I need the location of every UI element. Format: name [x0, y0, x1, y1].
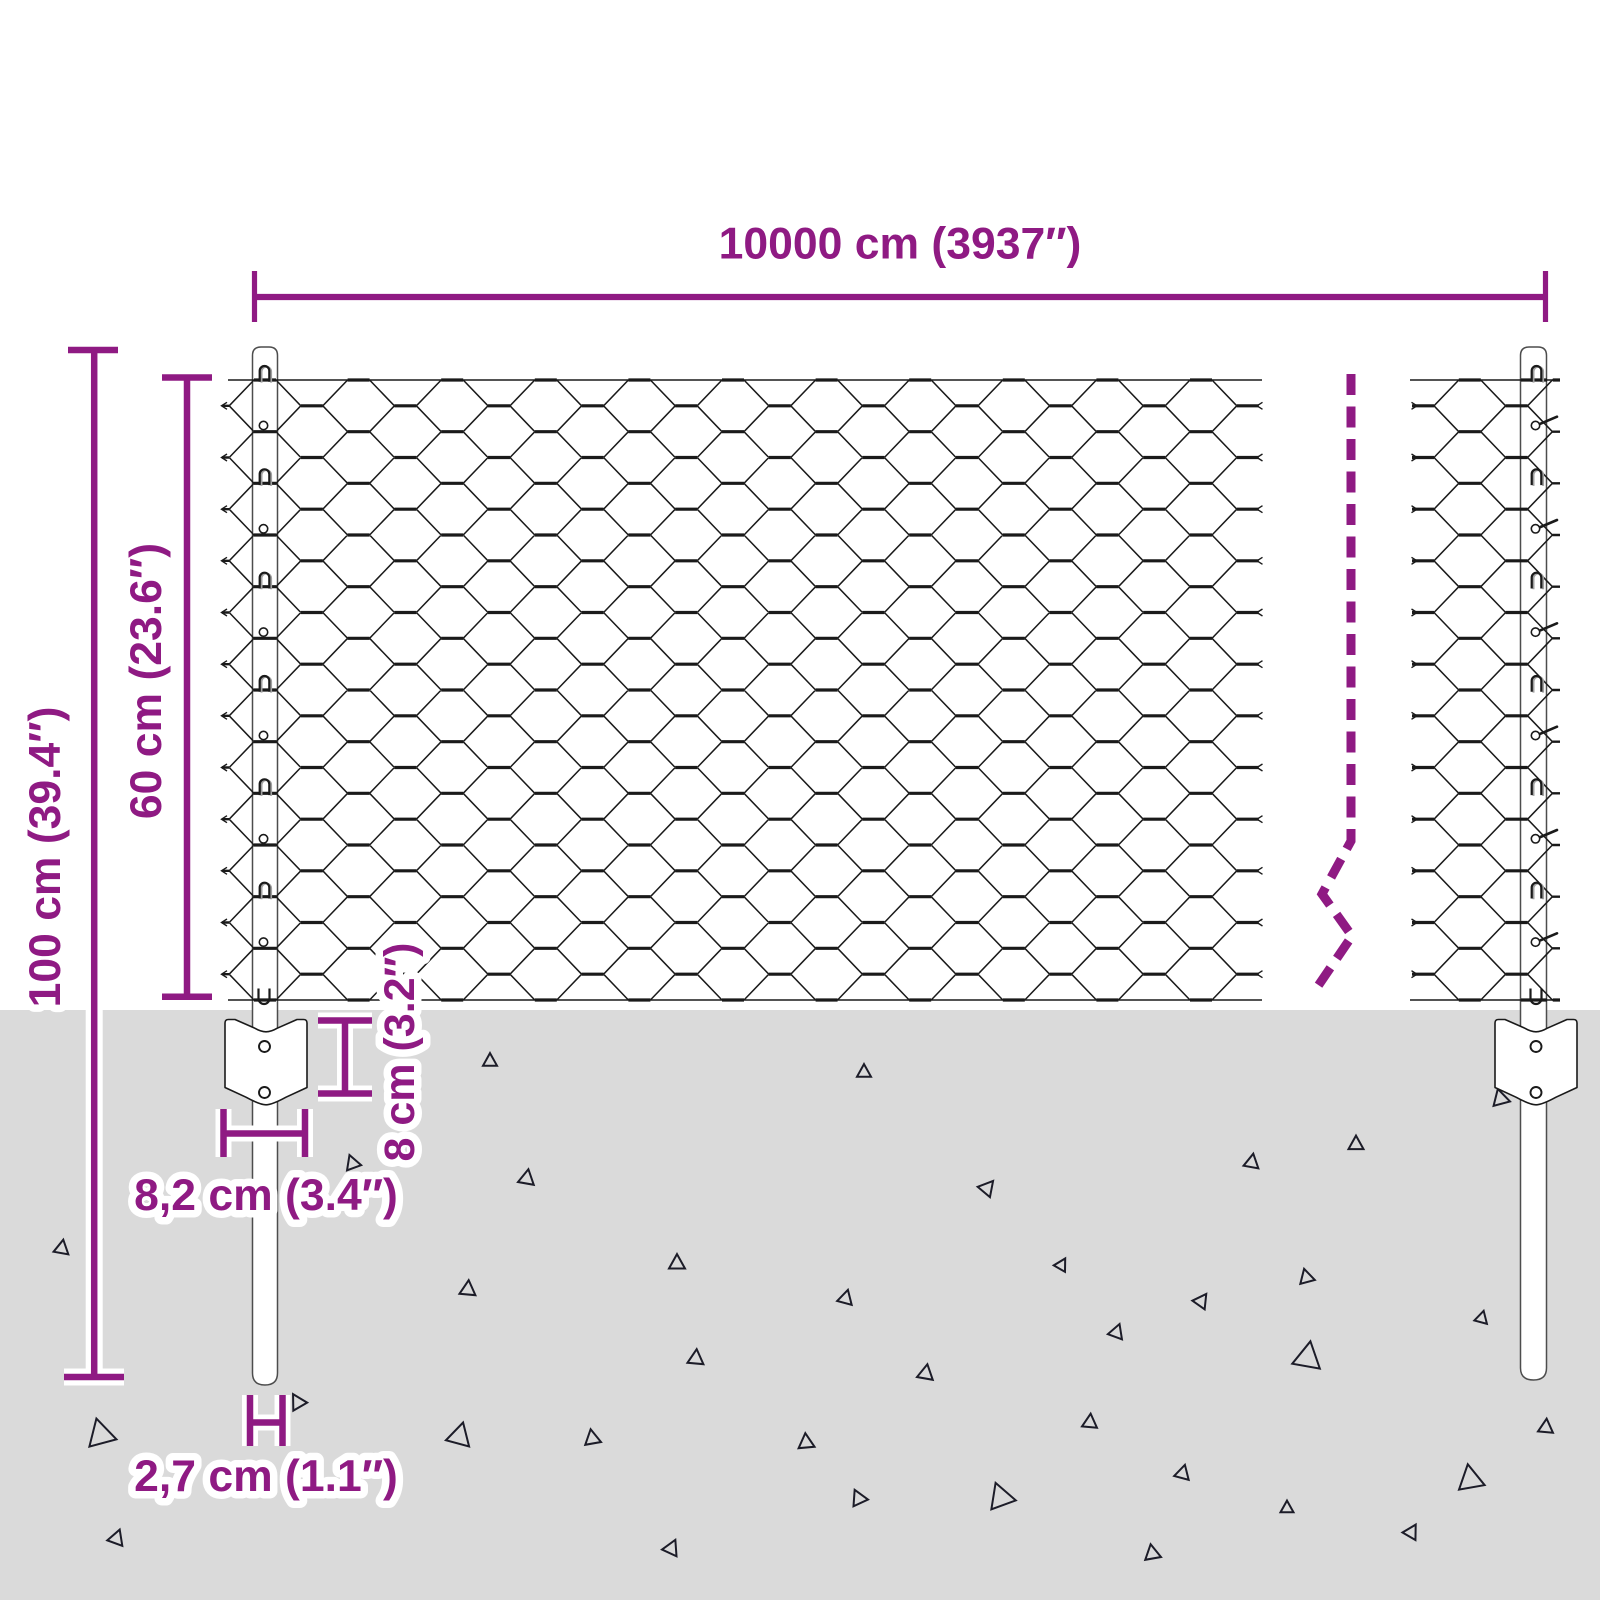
svg-text:60 cm (23.6″): 60 cm (23.6″) — [122, 543, 171, 819]
svg-text:2,7 cm (1.1″): 2,7 cm (1.1″) — [134, 1452, 398, 1501]
svg-text:8 cm (3.2″): 8 cm (3.2″) — [376, 943, 424, 1162]
svg-text:100 cm (39.4″): 100 cm (39.4″) — [21, 707, 70, 1008]
svg-text:10000 cm (3937″): 10000 cm (3937″) — [719, 220, 1082, 269]
svg-text:8,2 cm (3.4″): 8,2 cm (3.4″) — [134, 1171, 398, 1220]
